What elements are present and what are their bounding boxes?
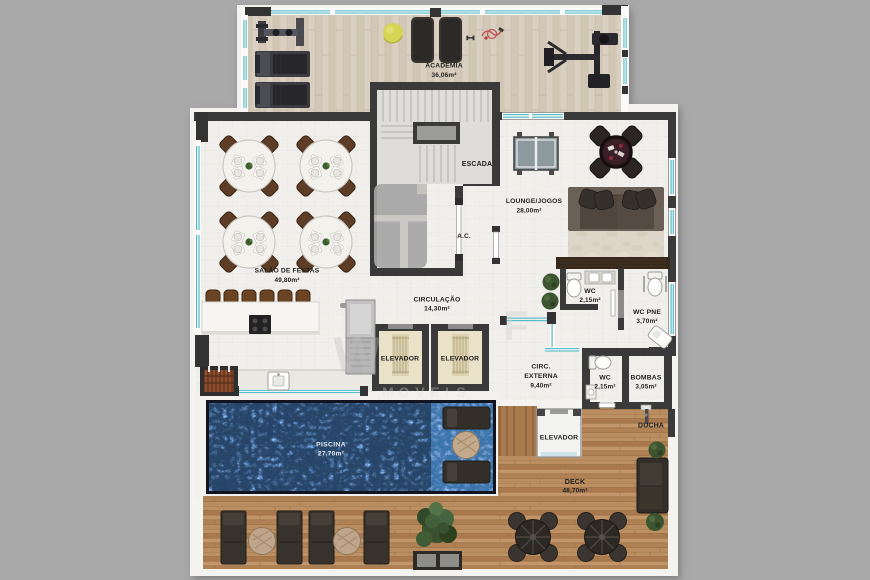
- svg-text:ACADEMIA: ACADEMIA: [425, 63, 462, 70]
- svg-text:ESCADA: ESCADA: [462, 161, 492, 168]
- svg-text:F: F: [503, 302, 529, 349]
- svg-text:A.C.: A.C.: [457, 233, 471, 240]
- svg-text:WC: WC: [584, 288, 596, 295]
- svg-text:W: W: [333, 327, 381, 383]
- svg-text:CIRC.: CIRC.: [531, 364, 550, 371]
- svg-text:36,06m²: 36,06m²: [431, 72, 457, 79]
- svg-text:WC: WC: [599, 375, 611, 382]
- svg-text:2,15m²: 2,15m²: [594, 384, 616, 391]
- svg-text:EXTERNA: EXTERNA: [524, 373, 558, 380]
- svg-text:SALÃO DE FESTAS: SALÃO DE FESTAS: [255, 266, 320, 275]
- svg-text:E: E: [430, 384, 439, 400]
- svg-text:O: O: [399, 384, 410, 400]
- svg-text:48,70m²: 48,70m²: [562, 488, 588, 495]
- svg-text:ELEVADOR: ELEVADOR: [381, 356, 419, 363]
- svg-text:49,80m²: 49,80m²: [274, 277, 300, 284]
- svg-text:14,30m²: 14,30m²: [424, 306, 450, 313]
- svg-text:LOUNGE/JOGOS: LOUNGE/JOGOS: [506, 198, 563, 205]
- svg-text:28,00m²: 28,00m²: [516, 208, 542, 215]
- svg-text:3,70m²: 3,70m²: [636, 318, 658, 325]
- svg-text:27,70m²: 27,70m²: [318, 451, 345, 458]
- svg-text:BOMBAS: BOMBAS: [630, 375, 661, 382]
- svg-text:PISCINA: PISCINA: [316, 442, 346, 449]
- svg-text:M: M: [382, 384, 394, 400]
- svg-text:WC PNE: WC PNE: [633, 309, 661, 316]
- svg-text:S: S: [456, 384, 465, 400]
- svg-text:CIRCULAÇÃO: CIRCULAÇÃO: [414, 295, 461, 304]
- svg-text:DUCHA: DUCHA: [638, 423, 664, 430]
- svg-text:3,05m²: 3,05m²: [635, 384, 657, 391]
- svg-text:ELEVADOR: ELEVADOR: [540, 435, 578, 442]
- svg-text:2,15m²: 2,15m²: [579, 297, 601, 304]
- svg-text:V: V: [415, 384, 425, 400]
- svg-text:I: I: [445, 384, 449, 400]
- svg-text:ELEVADOR: ELEVADOR: [441, 356, 479, 363]
- svg-text:DECK: DECK: [565, 479, 585, 486]
- svg-text:9,40m²: 9,40m²: [530, 383, 552, 390]
